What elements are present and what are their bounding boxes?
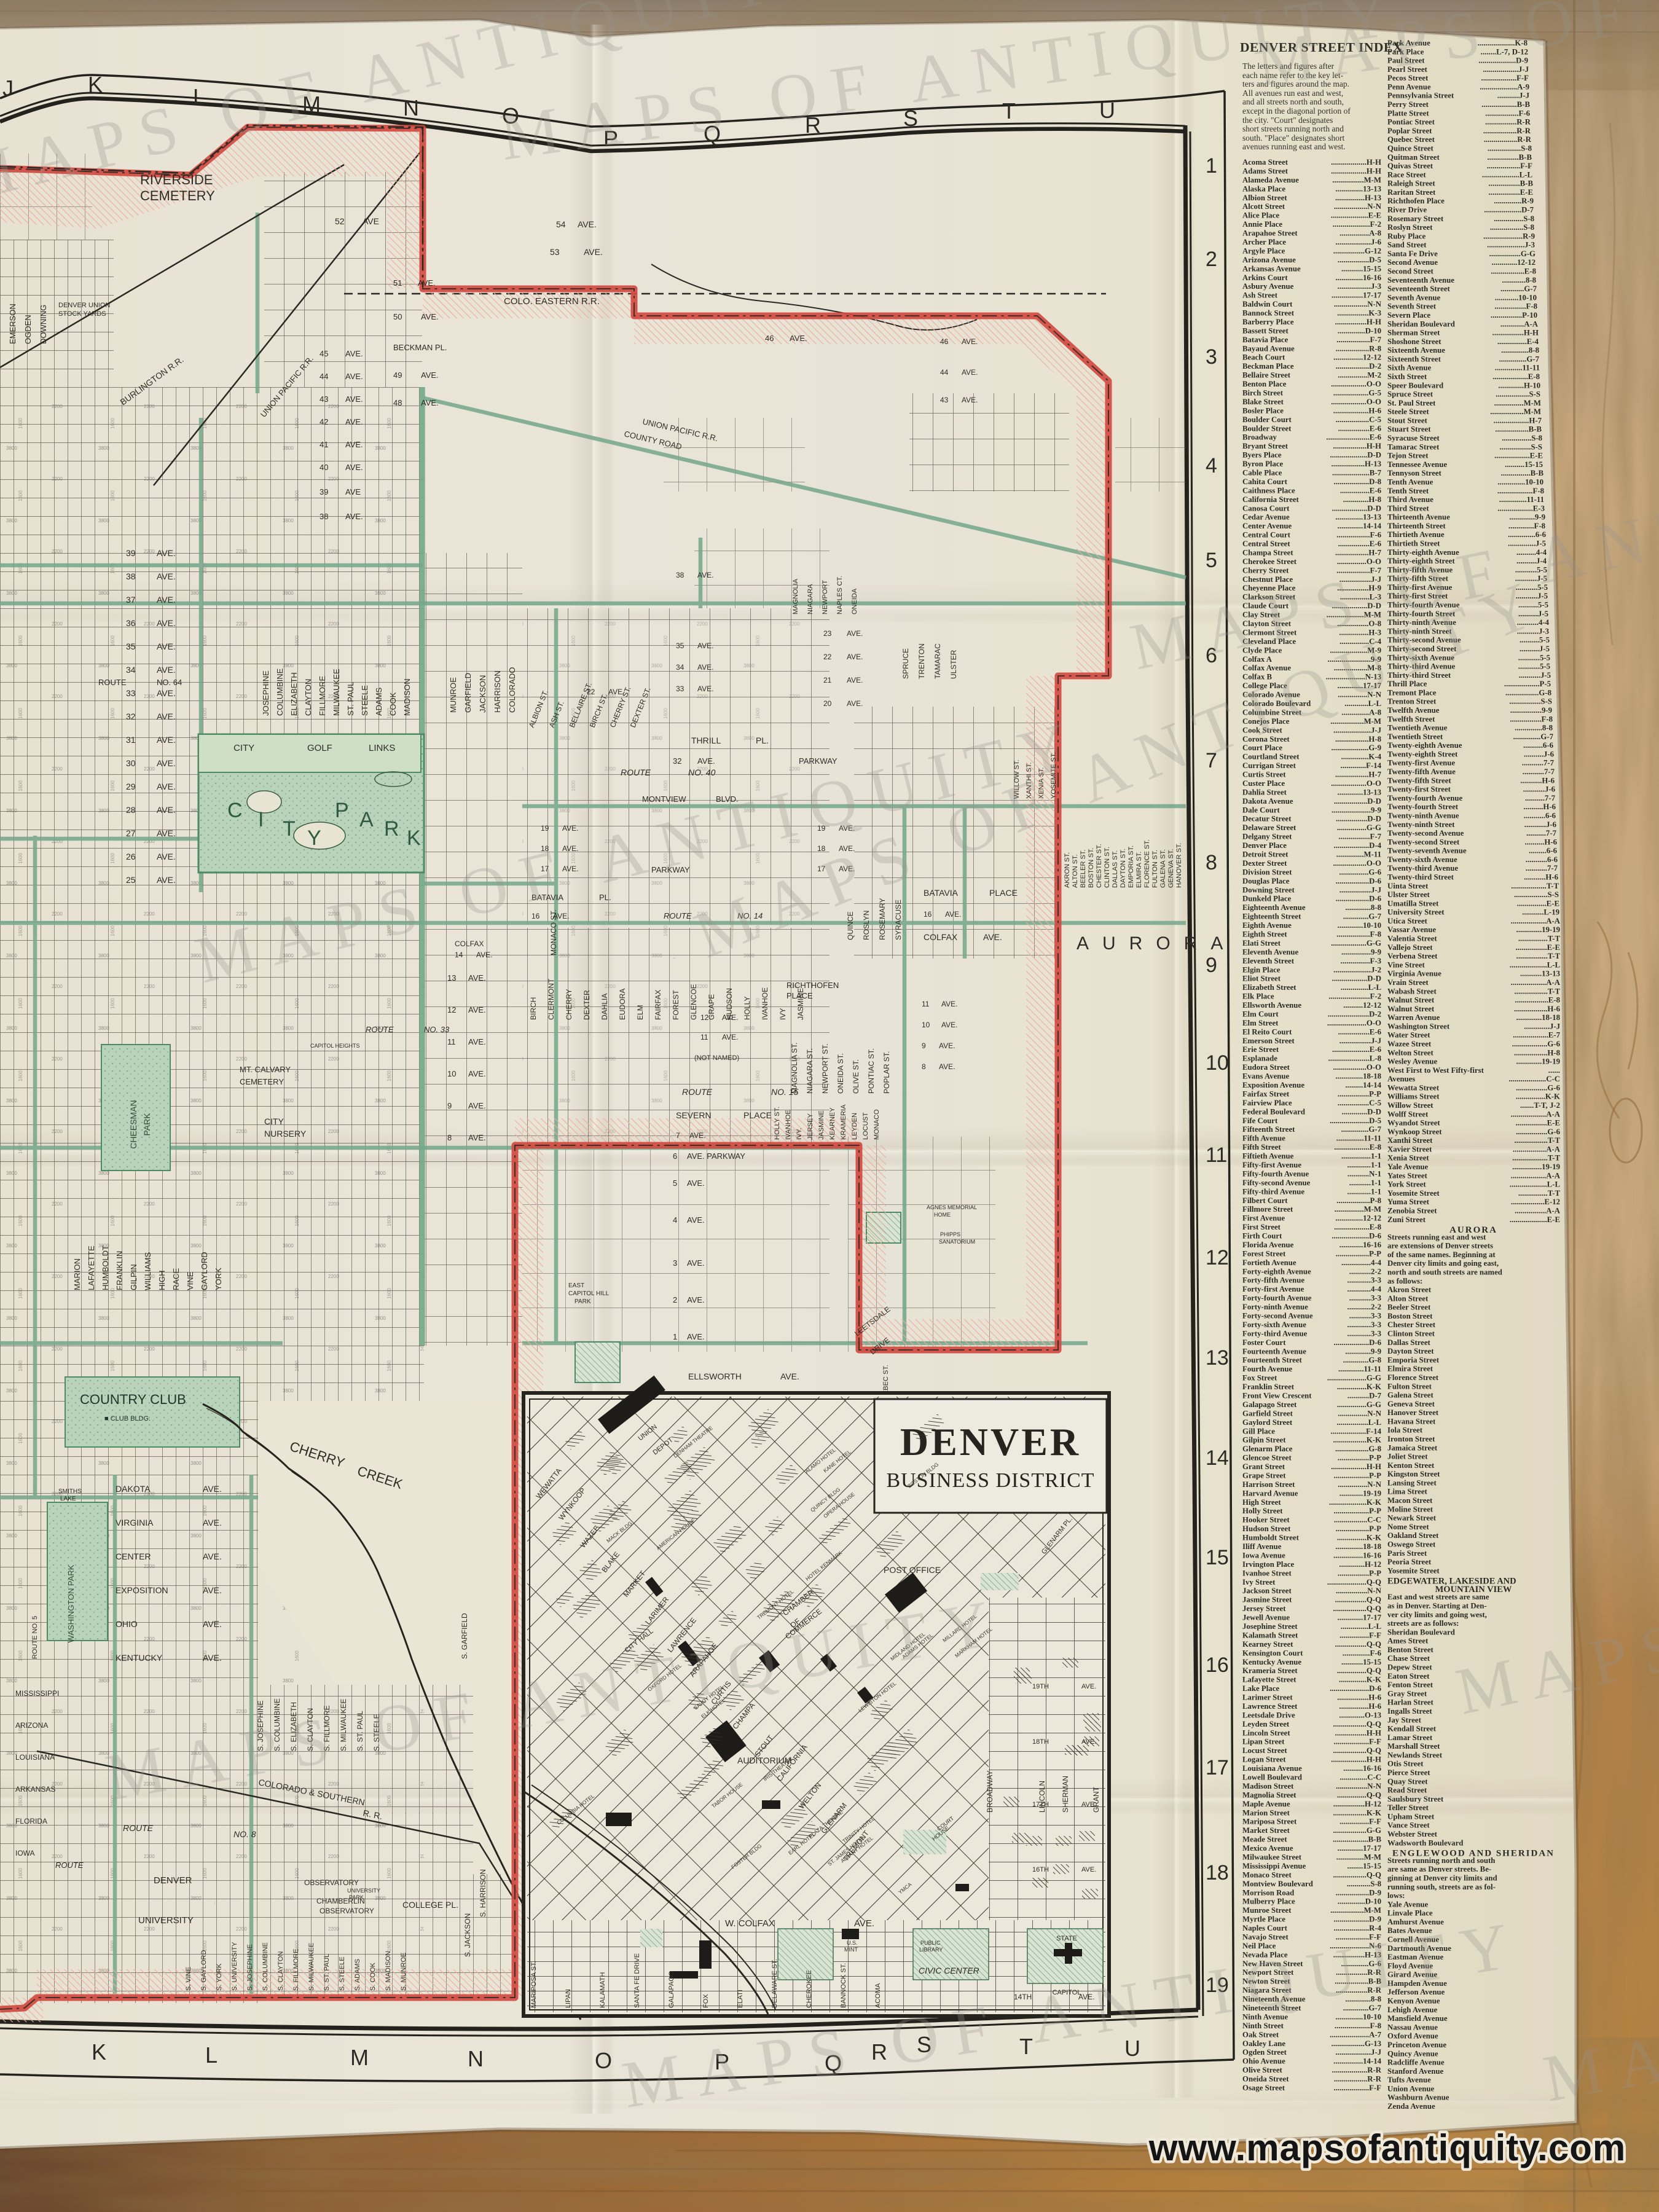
svg-text:2: 2 [1206, 248, 1217, 271]
svg-text:..............D-10: ..............D-10 [1338, 326, 1381, 335]
svg-text:Douglas Place: Douglas Place [1242, 877, 1290, 885]
svg-text:Mississippi Avenue: Mississippi Avenue [1242, 1862, 1306, 1870]
svg-text:W. COLFAX: W. COLFAX [725, 1918, 775, 1929]
svg-text:.............H-10: .............H-10 [1498, 381, 1540, 390]
svg-text:ROSLYN: ROSLYN [862, 911, 871, 940]
svg-text:Benton Street: Benton Street [1387, 1645, 1433, 1654]
svg-text:S. YORK: S. YORK [216, 1963, 223, 1991]
svg-text:Santa Fe Drive: Santa Fe Drive [1387, 249, 1438, 258]
svg-text:26: 26 [126, 852, 136, 861]
svg-text:7: 7 [676, 1131, 680, 1140]
svg-text:................H-H: ................H-H [1335, 318, 1381, 326]
svg-text:.................N-N: .................N-N [1334, 300, 1382, 308]
svg-text:...................D-6: ...................D-6 [1332, 1232, 1381, 1241]
svg-text:COLO. EASTERN R.R.: COLO. EASTERN R.R. [504, 296, 600, 307]
svg-text:Grant Street: Grant Street [1242, 1462, 1285, 1471]
svg-text:11: 11 [700, 1033, 708, 1041]
svg-text:AVE.: AVE. [962, 396, 978, 404]
svg-text:.................F-6: .................F-6 [1485, 109, 1530, 117]
svg-text:AVE.: AVE. [157, 665, 176, 675]
svg-text:Yates Street: Yates Street [1387, 1171, 1428, 1180]
svg-text:37: 37 [126, 595, 136, 605]
svg-text:.................R-R: .................R-R [1484, 135, 1532, 144]
svg-text:AVE.: AVE. [421, 371, 439, 380]
svg-text:Federal Boulevard: Federal Boulevard [1242, 1107, 1305, 1116]
svg-text:CHERRY: CHERRY [565, 989, 573, 1020]
svg-text:.................M-M: .................M-M [1490, 407, 1541, 416]
svg-text:............19-19: ............19-19 [1339, 1489, 1381, 1497]
svg-text:ST. PAUL: ST. PAUL [346, 682, 355, 716]
svg-text:NO. 64: NO. 64 [157, 678, 182, 687]
svg-text:Cedar Avenue: Cedar Avenue [1242, 513, 1290, 522]
svg-text:CLERMONT: CLERMONT [547, 978, 555, 1020]
svg-text:AVE.: AVE. [790, 334, 807, 343]
svg-text:Yale Avenue: Yale Avenue [1387, 1163, 1429, 1171]
svg-text:Argyle Place: Argyle Place [1242, 246, 1285, 255]
svg-text:...............M-M: ...............M-M [1335, 1205, 1381, 1214]
svg-text:Tufts Avenue: Tufts Avenue [1387, 2076, 1431, 2084]
svg-text:EAST: EAST [568, 1282, 584, 1289]
svg-text:32: 32 [673, 756, 681, 766]
svg-text:..................D-D: ..................D-D [1332, 975, 1381, 983]
svg-text:MARION: MARION [73, 1258, 82, 1290]
svg-text:Perry Street: Perry Street [1387, 100, 1429, 109]
svg-text:AVE: AVE [345, 487, 361, 496]
svg-text:..................G-5: ..................G-5 [1333, 389, 1381, 398]
svg-text:are same as Denver streets.: are same as Denver streets. Be- [1387, 1865, 1491, 1873]
svg-text:................D-5: ................D-5 [1338, 256, 1381, 264]
svg-text:............1-1: ............1-1 [1347, 1161, 1381, 1169]
svg-text:Macon Street: Macon Street [1387, 1496, 1433, 1505]
svg-text:AURORA: AURORA [1077, 933, 1236, 954]
svg-text:AVE.: AVE. [468, 1037, 486, 1046]
svg-text:.........6-6: .........6-6 [1529, 847, 1557, 855]
svg-text:Kentucky Avenue: Kentucky Avenue [1242, 1658, 1301, 1666]
svg-text:Bannock Street: Bannock Street [1242, 309, 1295, 318]
svg-text:DAHLIA: DAHLIA [600, 994, 609, 1020]
svg-text:Elm Court: Elm Court [1242, 1010, 1279, 1019]
svg-text:48: 48 [393, 398, 402, 407]
svg-text:DEXTER: DEXTER [582, 990, 591, 1020]
svg-text:.................F-F: .................F-F [1487, 162, 1532, 170]
svg-text:ONEIDA: ONEIDA [851, 588, 858, 614]
svg-text:NO. 33: NO. 33 [424, 1025, 450, 1034]
svg-text:S. COLUMBINE: S. COLUMBINE [262, 1942, 269, 1991]
svg-text:AVE.: AVE. [203, 1619, 222, 1629]
svg-text:SEVERN: SEVERN [676, 1110, 712, 1120]
svg-text:UNIVERSITY: UNIVERSITY [138, 1915, 194, 1926]
svg-text:ARIZONA: ARIZONA [15, 1721, 48, 1730]
svg-text:...............H-13: ...............H-13 [1335, 194, 1381, 202]
svg-text:..................E-8: ..................E-8 [1334, 1143, 1381, 1151]
svg-text:OHIO: OHIO [116, 1619, 138, 1629]
svg-text:.................E-12: .................E-12 [1511, 1198, 1560, 1206]
svg-text:WASHINGTON PARK: WASHINGTON PARK [66, 1564, 76, 1642]
svg-text:ROUTE: ROUTE [55, 1861, 84, 1870]
svg-text:................H-12: ................H-12 [1333, 1800, 1381, 1808]
svg-text:...................L-L: ...................L-L [1510, 1180, 1560, 1189]
svg-text:Beckman Place: Beckman Place [1242, 362, 1294, 371]
svg-text:AVE.: AVE. [780, 1371, 799, 1381]
svg-text:AVE.: AVE. [847, 699, 863, 708]
svg-text:Stanford Avenue: Stanford Avenue [1387, 2067, 1443, 2076]
svg-text:Front View Crescent: Front View Crescent [1242, 1392, 1312, 1400]
svg-text:............S-8: ............S-8 [1347, 1880, 1381, 1888]
svg-text:................B-B: ................B-B [1488, 179, 1533, 188]
svg-text:27: 27 [126, 828, 136, 838]
svg-text:AKRON ST.: AKRON ST. [1064, 852, 1071, 888]
svg-text:PLACE: PLACE [989, 888, 1018, 898]
svg-text:Cable Place: Cable Place [1242, 469, 1282, 477]
svg-text:...........J-6: ...........J-6 [1523, 785, 1556, 794]
svg-text:Denver Place: Denver Place [1242, 841, 1287, 850]
svg-text:16: 16 [1206, 1653, 1229, 1677]
svg-text:29: 29 [126, 782, 136, 791]
svg-text:Garfield Street: Garfield Street [1242, 1409, 1293, 1418]
svg-text:23: 23 [823, 629, 832, 638]
svg-text:Sheridan Boulevard: Sheridan Boulevard [1387, 1628, 1455, 1636]
svg-text:...............E-E: ...............E-E [1517, 899, 1559, 908]
svg-text:T: T [283, 817, 296, 841]
svg-text:Wyandot Street: Wyandot Street [1387, 1119, 1440, 1128]
svg-text:................E-6: ................E-6 [1338, 1027, 1382, 1036]
svg-text:Raleigh Street: Raleigh Street [1387, 179, 1435, 188]
svg-text:Fourteenth Avenue: Fourteenth Avenue [1242, 1347, 1306, 1355]
svg-text:Locust Street: Locust Street [1242, 1746, 1287, 1755]
svg-text:OGDEN: OGDEN [23, 315, 33, 344]
svg-text:ELMIRA ST.: ELMIRA ST. [1135, 852, 1143, 888]
svg-text:Thirtieth Avenue: Thirtieth Avenue [1387, 530, 1445, 539]
svg-text:Downing Street: Downing Street [1242, 885, 1295, 894]
svg-text:................E-E: ................E-E [1488, 188, 1533, 197]
svg-text:LEYDEN: LEYDEN [851, 1113, 858, 1140]
svg-text:Tenth Street: Tenth Street [1387, 487, 1429, 495]
svg-text:................K-3: ................K-3 [1337, 309, 1381, 318]
svg-text:Wazee Street: Wazee Street [1387, 1040, 1432, 1048]
svg-text:Otis Street: Otis Street [1387, 1760, 1424, 1768]
svg-text:Pontiac Street: Pontiac Street [1387, 118, 1435, 127]
svg-text:Zenda Avenue: Zenda Avenue [1387, 2102, 1435, 2111]
svg-text:...............S-8: ...............S-8 [1502, 434, 1542, 442]
svg-text:Forty-fifth Avenue: Forty-fifth Avenue [1242, 1276, 1304, 1285]
svg-text:AVE.: AVE. [847, 629, 863, 638]
svg-text:S. JOSEPHINE: S. JOSEPHINE [246, 1944, 254, 1991]
svg-text:AVE.: AVE. [345, 440, 363, 449]
svg-text:Water Street: Water Street [1387, 1031, 1430, 1040]
svg-text:...................E-6: ...................E-6 [1332, 1045, 1382, 1054]
svg-text:.............8-8: .............8-8 [1345, 903, 1381, 912]
svg-text:Dahlia Street: Dahlia Street [1242, 788, 1287, 796]
svg-text:................A-A: ................A-A [1515, 1207, 1561, 1215]
svg-text:OLIVE ST.: OLIVE ST. [852, 1059, 860, 1094]
svg-text:14: 14 [455, 951, 463, 959]
svg-text:....................R-9: ....................R-9 [1483, 232, 1535, 240]
svg-text:OBSERVATORY: OBSERVATORY [304, 1878, 359, 1887]
svg-text:S. JACKSON: S. JACKSON [463, 1913, 472, 1957]
svg-text:Avenues: Avenues [1387, 1075, 1415, 1083]
svg-text:Delgany Street: Delgany Street [1242, 833, 1292, 841]
svg-text:Twenty-seventh Avenue: Twenty-seventh Avenue [1387, 847, 1467, 855]
svg-text:Lincoln Street: Lincoln Street [1242, 1728, 1290, 1737]
svg-text:3: 3 [1206, 345, 1217, 369]
svg-text:Ohio Avenue: Ohio Avenue [1242, 2057, 1285, 2066]
svg-text:35: 35 [676, 641, 684, 650]
svg-text:Sixth Avenue: Sixth Avenue [1387, 364, 1432, 372]
svg-text:Second Street: Second Street [1387, 267, 1433, 276]
svg-text:ELLSWORTH: ELLSWORTH [688, 1371, 742, 1381]
svg-text:AVE.: AVE. [345, 394, 363, 404]
svg-text:IVANHOE: IVANHOE [785, 1110, 792, 1140]
svg-text:Filbert Court: Filbert Court [1242, 1196, 1288, 1205]
svg-text:AVE.: AVE. [468, 1101, 486, 1110]
svg-text:AVE.: AVE. [345, 372, 363, 381]
svg-text:Twenty-first Street: Twenty-first Street [1387, 785, 1451, 794]
svg-text:................9-9: ................9-9 [1510, 706, 1552, 715]
svg-text:AVE.: AVE. [697, 571, 713, 579]
svg-text:as follows:: as follows: [1387, 1277, 1422, 1285]
svg-text:Dakota Avenue: Dakota Avenue [1242, 797, 1293, 806]
svg-text:Arkins Court: Arkins Court [1242, 273, 1288, 282]
svg-text:Gaylord Street: Gaylord Street [1242, 1418, 1293, 1427]
svg-text:16: 16 [924, 910, 932, 919]
svg-text:38: 38 [126, 571, 136, 581]
svg-text:10: 10 [1206, 1051, 1229, 1075]
svg-text:AVE. PARKWAY: AVE. PARKWAY [687, 1151, 745, 1161]
svg-text:Batavia Place: Batavia Place [1242, 335, 1288, 344]
svg-text:Tennessee Avenue: Tennessee Avenue [1387, 460, 1447, 469]
svg-text:Lehigh Avenue: Lehigh Avenue [1387, 2006, 1438, 2014]
svg-text:..............10-10: ..............10-10 [1335, 2013, 1381, 2022]
svg-text:DOWNING: DOWNING [39, 305, 48, 344]
svg-text:Mexico Avenue: Mexico Avenue [1242, 1844, 1293, 1853]
svg-text:FAIRFAX: FAIRFAX [654, 990, 662, 1020]
svg-text:Jackson Street: Jackson Street [1242, 1586, 1292, 1595]
svg-text:.............F-14: .............F-14 [1341, 761, 1382, 770]
svg-text:Radcliffe Avenue: Radcliffe Avenue [1387, 2058, 1445, 2067]
svg-text:GALAPAGO: GALAPAGO [668, 1971, 675, 2008]
svg-text:AUDITORIUM: AUDITORIUM [737, 1755, 791, 1765]
svg-text:....................Q-Q: ....................Q-Q [1327, 1578, 1381, 1586]
svg-text:..................E-7: ..................E-7 [1513, 1031, 1560, 1040]
svg-text:FOX: FOX [702, 1994, 710, 2008]
svg-text:.....................F-2: .....................F-2 [1328, 992, 1381, 1001]
svg-text:................N-N: ................N-N [1336, 1586, 1382, 1595]
svg-text:..............10-10: ..............10-10 [1497, 478, 1543, 487]
svg-text:..................T-T: ..................T-T [1512, 1154, 1560, 1163]
svg-text:AVE.: AVE. [421, 312, 439, 321]
svg-text:COLORADO: COLORADO [508, 667, 517, 713]
svg-text:Lima Street: Lima Street [1387, 1488, 1428, 1496]
svg-text:Twenty-sixth Avenue: Twenty-sixth Avenue [1387, 855, 1457, 864]
svg-text:Twelfth Street: Twelfth Street [1387, 715, 1435, 723]
svg-text:AVE.: AVE. [345, 349, 363, 358]
svg-text:Myrtle Place: Myrtle Place [1242, 1915, 1285, 1924]
svg-text:Ruby Place: Ruby Place [1387, 232, 1426, 240]
svg-text:..................H-H: ..................H-H [1331, 158, 1381, 167]
svg-text:...........J-J: ...........J-J [1497, 92, 1530, 100]
svg-text:32: 32 [126, 712, 136, 721]
svg-text:COLLEGE PL.: COLLEGE PL. [402, 1900, 458, 1910]
svg-text:ROUTE: ROUTE [123, 1823, 154, 1833]
svg-text:..............C-C: ..............C-C [1339, 1773, 1381, 1782]
svg-text:AVE.: AVE. [854, 1918, 874, 1929]
svg-text:AVE.: AVE. [157, 641, 176, 651]
svg-text:Upham Street: Upham Street [1387, 1813, 1435, 1821]
svg-text:Iola Street: Iola Street [1387, 1426, 1423, 1435]
svg-text:46: 46 [940, 337, 949, 346]
svg-text:AVE.: AVE. [847, 676, 863, 684]
svg-text:Benton Place: Benton Place [1242, 380, 1287, 388]
svg-text:Jewell Avenue: Jewell Avenue [1242, 1614, 1290, 1622]
svg-text:CIVIC CENTER: CIVIC CENTER [919, 1966, 979, 1975]
svg-text:TAMARAC: TAMARAC [933, 643, 942, 679]
svg-text:DENVER UNION: DENVER UNION [58, 302, 110, 309]
svg-text:MUNROE: MUNROE [449, 677, 458, 713]
svg-text:Newlands Street: Newlands Street [1387, 1751, 1443, 1759]
svg-text:..................F-F: ..................F-F [1334, 1738, 1382, 1746]
svg-text:AVE.: AVE. [345, 512, 363, 521]
svg-text:Newark Street: Newark Street [1387, 1514, 1437, 1523]
svg-text:SANATORIUM: SANATORIUM [939, 1239, 975, 1245]
svg-text:Umatilla Street: Umatilla Street [1387, 899, 1439, 908]
svg-text:...............K-K: ...............K-K [1516, 1092, 1560, 1101]
svg-text:TRENTON: TRENTON [917, 643, 926, 679]
svg-text:...............N-N: ...............N-N [1338, 1480, 1381, 1489]
svg-text:...............H-6: ...............H-6 [1339, 1702, 1381, 1711]
svg-text:...............F-F: ...............F-F [1339, 1631, 1381, 1639]
svg-text:...................G-9: ...................G-9 [1332, 743, 1381, 752]
svg-text:ver city limits and going: ver city limits and going west, [1387, 1610, 1487, 1619]
svg-text:...........5-5: ...........5-5 [1518, 653, 1550, 662]
svg-text:44: 44 [940, 368, 949, 377]
svg-text:Zenobia Street: Zenobia Street [1387, 1207, 1437, 1215]
svg-text:Teller Street: Teller Street [1387, 1803, 1429, 1812]
svg-text:CAPITOL HEIGHTS: CAPITOL HEIGHTS [310, 1043, 360, 1049]
svg-text:10: 10 [922, 1021, 930, 1029]
svg-text:..................F-14: ..................F-14 [1331, 1427, 1382, 1435]
svg-text:RIVERSIDE: RIVERSIDE [140, 172, 213, 187]
svg-text:THRILL: THRILL [691, 735, 721, 745]
svg-text:...................F-2: ...................F-2 [1333, 220, 1381, 229]
svg-text:2: 2 [673, 1295, 677, 1304]
svg-text:...........D-7: ...........D-7 [1347, 1392, 1382, 1400]
svg-text:CEMETERY: CEMETERY [240, 1077, 284, 1086]
svg-text:..............11-11: ..............11-11 [1495, 364, 1540, 372]
svg-text:Kendall Street: Kendall Street [1387, 1725, 1437, 1733]
svg-text:...............19-19: ...............19-19 [1512, 1163, 1560, 1171]
svg-text:ULSTER: ULSTER [949, 649, 958, 679]
svg-text:.................G-8: .................G-8 [1505, 688, 1551, 697]
svg-text:12: 12 [1206, 1246, 1229, 1269]
svg-text:Wewatta Street: Wewatta Street [1387, 1083, 1440, 1092]
svg-text:except in the diagonal portion: except in the diagonal portion of [1242, 106, 1351, 116]
svg-text:Hooker Street: Hooker Street [1242, 1516, 1290, 1524]
svg-text:Twenty-first Avenue: Twenty-first Avenue [1387, 759, 1455, 767]
svg-text:PARKWAY: PARKWAY [799, 756, 837, 766]
svg-text:Ivanhoe Street: Ivanhoe Street [1242, 1569, 1292, 1577]
svg-text:Madison Street: Madison Street [1242, 1782, 1294, 1790]
svg-text:GRAPE: GRAPE [707, 994, 716, 1020]
svg-text:Fifty-third Avenue: Fifty-third Avenue [1242, 1187, 1304, 1196]
svg-text:Kearney Street: Kearney Street [1242, 1640, 1293, 1649]
svg-text:...............4-4: ...............4-4 [1341, 1258, 1382, 1267]
svg-text:Byron Place: Byron Place [1242, 460, 1284, 468]
svg-text:north and south streets are na: north and south streets are named [1387, 1268, 1502, 1277]
svg-text:.................R-R: .................R-R [1483, 127, 1531, 135]
svg-text:Acoma Street: Acoma Street [1242, 158, 1288, 167]
svg-text:...................L-L: ...................L-L [1510, 960, 1560, 969]
svg-text:....................G-G: ....................G-G [1327, 1374, 1381, 1382]
svg-text:AVE.: AVE. [157, 618, 176, 628]
svg-text:Moline Street: Moline Street [1387, 1505, 1433, 1513]
svg-text:AVE.: AVE. [687, 1215, 705, 1225]
svg-text:Cherry Street: Cherry Street [1242, 566, 1289, 575]
svg-text:..............13-13: ..............13-13 [1335, 184, 1381, 193]
svg-text:.................O-O: .................O-O [1333, 859, 1381, 868]
svg-text:...........7-7: ...........7-7 [1522, 759, 1555, 767]
svg-text:Bosler Place: Bosler Place [1242, 406, 1284, 415]
svg-text:KALAMATH: KALAMATH [599, 1972, 606, 2008]
svg-text:Twenty-ninth Street: Twenty-ninth Street [1387, 820, 1455, 829]
svg-text:............3-3: ............3-3 [1347, 1276, 1381, 1285]
svg-text:streets are as follows:: streets are as follows: [1387, 1619, 1459, 1628]
svg-text:AVE.: AVE. [468, 973, 486, 982]
svg-text:FULTON ST.: FULTON ST. [1151, 850, 1159, 888]
svg-text:BANNOCK ST.: BANNOCK ST. [840, 1963, 847, 2008]
svg-text:..................H-H: ..................H-H [1331, 1755, 1381, 1764]
svg-text:Wolff Street: Wolff Street [1387, 1110, 1429, 1118]
svg-text:.................Q-Q: .................Q-Q [1333, 1604, 1381, 1613]
svg-text:46: 46 [765, 334, 774, 343]
svg-text:............8-8: ............8-8 [1502, 276, 1536, 284]
svg-text:BOSTON ST.: BOSTON ST. [1088, 848, 1095, 888]
svg-text:Raritan Street: Raritan Street [1387, 188, 1436, 197]
svg-text:.................K-K: .................K-K [1333, 1436, 1381, 1445]
svg-text:Twenty-third Avenue: Twenty-third Avenue [1387, 864, 1458, 873]
svg-text:NEWPORT: NEWPORT [822, 580, 829, 614]
svg-text:CAPITOL HILL: CAPITOL HILL [568, 1290, 610, 1297]
svg-text:..............K-4: ..............K-4 [1341, 753, 1382, 761]
svg-text:AVE.: AVE. [584, 247, 603, 257]
svg-text:CHESTER ST.: CHESTER ST. [1096, 844, 1103, 888]
svg-text:Yuma Street: Yuma Street [1387, 1198, 1430, 1206]
svg-text:Gray Street: Gray Street [1387, 1689, 1427, 1698]
svg-text:Dexter Street: Dexter Street [1242, 859, 1287, 868]
svg-text:................Q-Q: ................Q-Q [1335, 1640, 1381, 1649]
svg-text:.................P-P: .................P-P [1336, 1524, 1381, 1533]
svg-text:................E-E: ................E-E [1515, 943, 1560, 952]
svg-text:First Street: First Street [1242, 1223, 1281, 1231]
svg-text:...............Q-Q: ...............Q-Q [1337, 1790, 1381, 1799]
svg-text:PARK: PARK [349, 1894, 364, 1900]
svg-text:AVE.: AVE. [1081, 1683, 1096, 1690]
svg-text:Quebec Street: Quebec Street [1387, 135, 1435, 144]
svg-text:30: 30 [126, 758, 136, 768]
svg-text:.....................D-2: .....................D-2 [1328, 1010, 1381, 1019]
svg-text:East and west streets are sam: East and west streets are same [1387, 1593, 1489, 1601]
svg-text:Lansing Street: Lansing Street [1387, 1479, 1437, 1488]
svg-text:.............O-13: .............O-13 [1339, 1711, 1381, 1719]
svg-text:PARK: PARK [575, 1298, 591, 1305]
svg-text:..................H-H: ..................H-H [1331, 167, 1381, 175]
svg-text:Fairview Place: Fairview Place [1242, 1099, 1292, 1107]
svg-text:Walnut Street: Walnut Street [1387, 1005, 1435, 1013]
svg-text:Twenty-ninth Avenue: Twenty-ninth Avenue [1387, 812, 1459, 820]
svg-text:Washington Street: Washington Street [1387, 1022, 1450, 1030]
svg-text:....................D-5: ....................D-5 [1330, 1116, 1381, 1125]
svg-text:Jasmine Street: Jasmine Street [1242, 1596, 1292, 1604]
svg-text:...........J-5: ...........J-5 [1519, 671, 1551, 680]
